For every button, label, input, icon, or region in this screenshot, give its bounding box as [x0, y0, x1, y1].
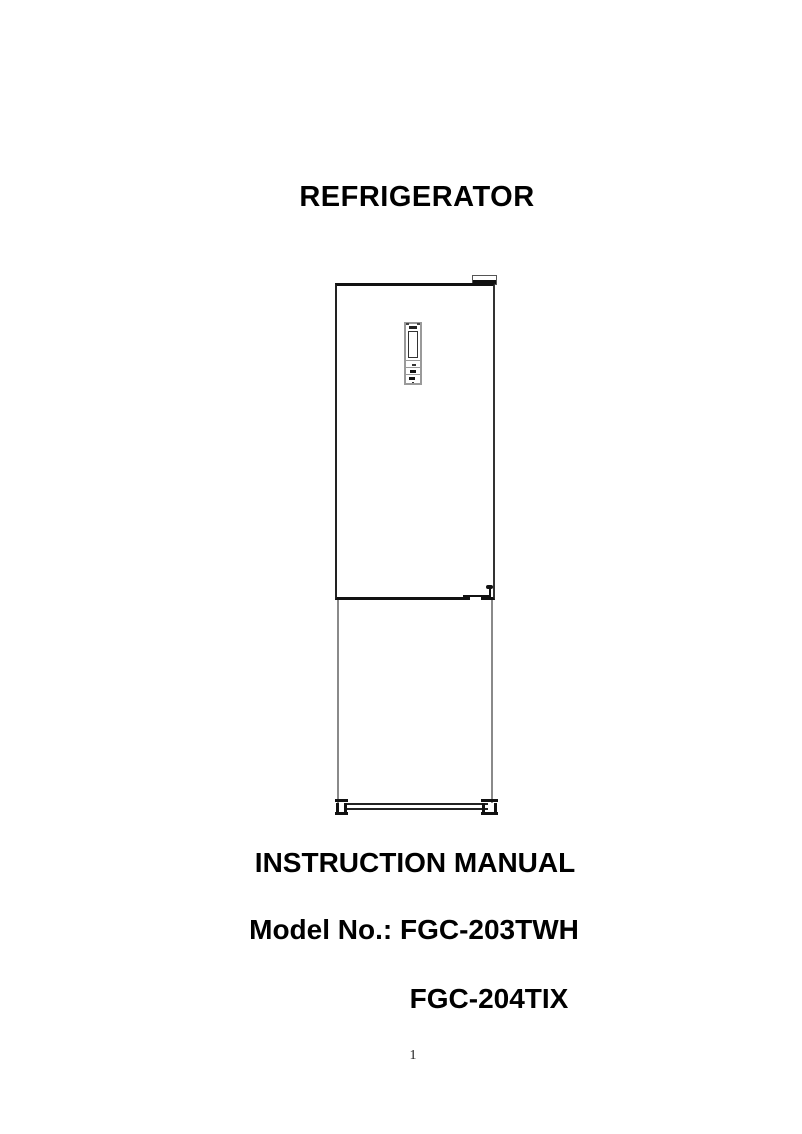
control-panel: [404, 322, 422, 385]
panel-button-row-2: [406, 367, 420, 374]
lower-freezer-door: [337, 600, 493, 803]
kick-plate-upper-line: [345, 803, 488, 805]
foot-roller: [336, 803, 339, 812]
refrigerator-drawing: [335, 275, 498, 821]
manual-heading: INSTRUCTION MANUAL: [255, 847, 575, 879]
kick-plate-lower-line: [345, 808, 488, 810]
foot-roller: [344, 803, 347, 812]
foot-roller: [482, 803, 485, 812]
model-number-primary: Model No.: FGC-203TWH: [249, 914, 579, 946]
page-number: 1: [410, 1048, 417, 1064]
model-number-secondary: FGC-204TIX: [410, 983, 569, 1015]
leveling-foot-left: [335, 799, 348, 816]
manual-cover-page: REFRIGERATOR: [0, 0, 802, 1134]
foot-base: [481, 812, 498, 815]
panel-button-glyph-2: [410, 370, 416, 373]
panel-display-window: [408, 331, 418, 358]
foot-bracket: [335, 799, 348, 802]
panel-screw-right: [417, 323, 420, 325]
foot-base: [335, 812, 348, 815]
panel-button-glyph-3: [409, 377, 415, 380]
foot-bracket: [481, 799, 498, 802]
panel-screw-left: [406, 323, 409, 325]
panel-button-row-1: [406, 360, 420, 367]
foot-roller: [494, 803, 497, 812]
panel-indicator-dot: [412, 382, 414, 383]
panel-button-glyph-1: [412, 364, 416, 366]
panel-top-bar: [409, 326, 417, 329]
leveling-foot-right: [481, 799, 498, 816]
page-title: REFRIGERATOR: [299, 181, 534, 214]
panel-button-row-3: [406, 374, 420, 381]
